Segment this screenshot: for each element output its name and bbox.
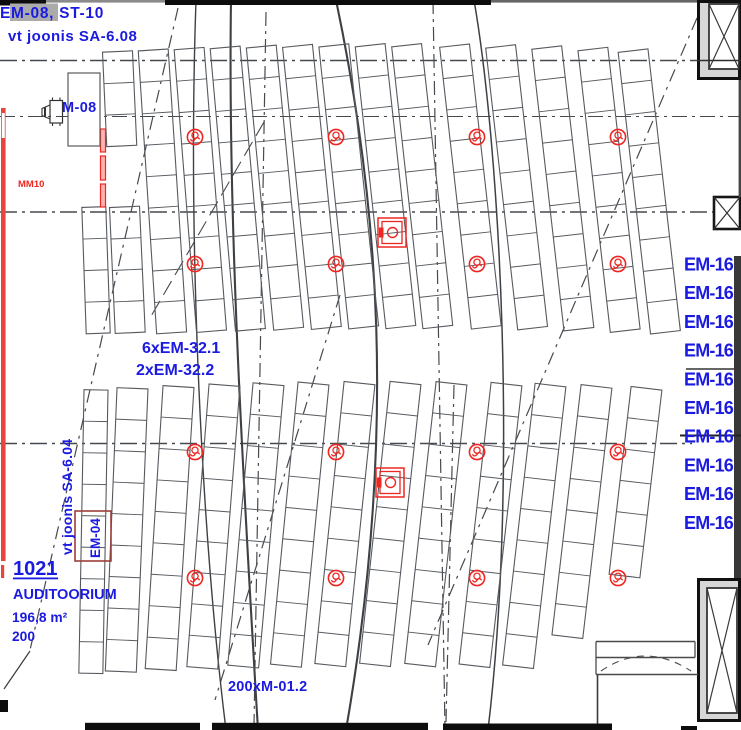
- svg-text:2xEM-32.2: 2xEM-32.2: [136, 362, 214, 379]
- svg-text:1021: 1021: [13, 558, 58, 580]
- svg-text:200xM-01.2: 200xM-01.2: [228, 679, 307, 695]
- svg-text:EM-16: EM-16: [684, 312, 734, 332]
- svg-text:EM-16: EM-16: [684, 255, 734, 275]
- svg-text:EM-04: EM-04: [88, 518, 103, 558]
- svg-text:vt joonis SA-6.04: vt joonis SA-6.04: [59, 439, 75, 555]
- svg-text:EM-08, ST-10: EM-08, ST-10: [0, 5, 104, 22]
- svg-text:EM-16: EM-16: [684, 283, 734, 303]
- svg-text:200: 200: [12, 629, 35, 644]
- svg-text:EM-16: EM-16: [684, 513, 734, 533]
- svg-text:AUDITOORIUM: AUDITOORIUM: [13, 587, 117, 603]
- svg-text:6xEM-32.1: 6xEM-32.1: [142, 340, 220, 357]
- svg-text:EM-16: EM-16: [684, 427, 734, 447]
- svg-text:196,8 m²: 196,8 m²: [12, 610, 68, 625]
- svg-text:M-08: M-08: [62, 100, 97, 116]
- svg-text:MM10: MM10: [18, 179, 44, 190]
- svg-text:EM-16: EM-16: [684, 341, 734, 361]
- svg-text:EM-16: EM-16: [684, 398, 734, 418]
- svg-text:EM-16: EM-16: [684, 369, 734, 389]
- svg-text:EM-16: EM-16: [684, 455, 734, 475]
- svg-text:vt joonis SA-6.08: vt joonis SA-6.08: [8, 28, 137, 45]
- svg-text:EM-16: EM-16: [684, 484, 734, 504]
